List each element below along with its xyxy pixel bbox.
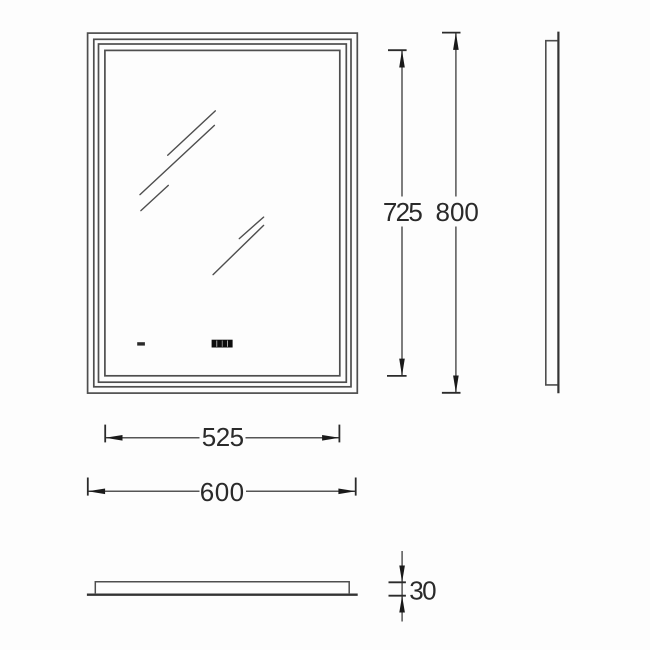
svg-text:600: 600	[200, 477, 245, 507]
svg-text:725: 725	[383, 197, 423, 227]
svg-text:30: 30	[409, 576, 436, 606]
svg-text:525: 525	[202, 422, 244, 452]
svg-text:800: 800	[436, 197, 479, 227]
